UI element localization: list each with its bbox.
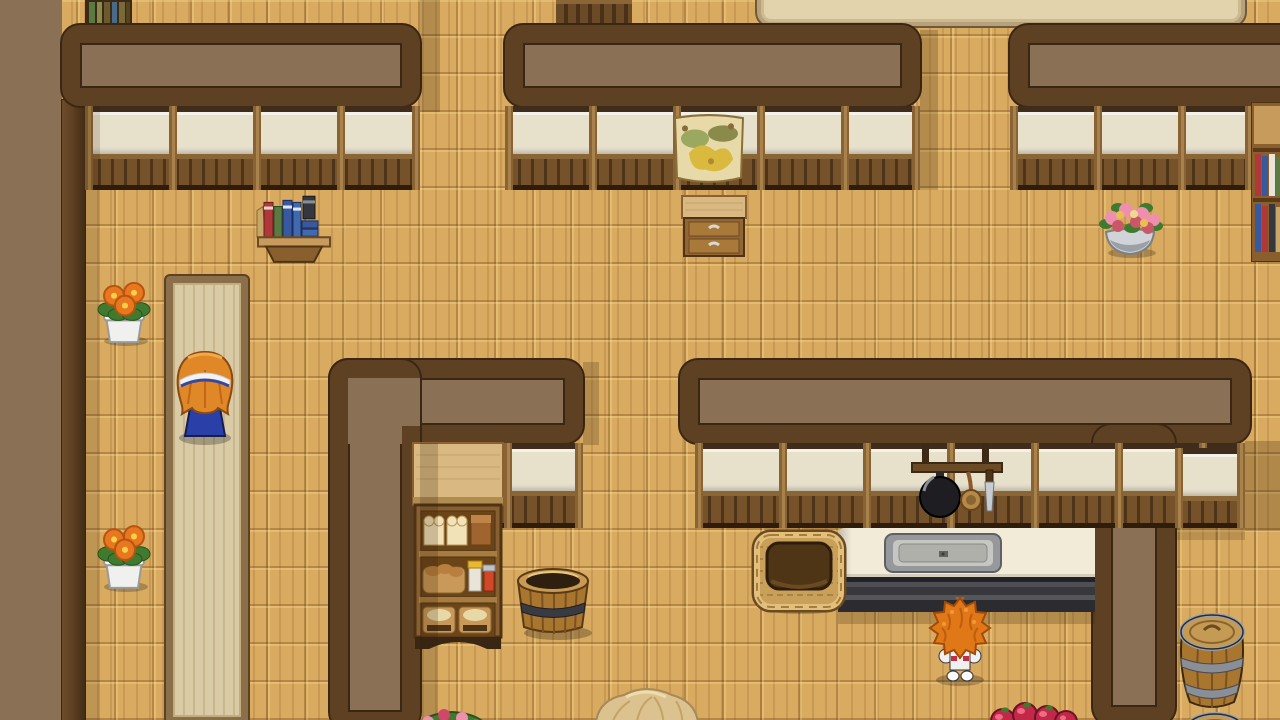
- wall-cap-top-right: [1010, 25, 1280, 106]
- flower-pot-orange: [92, 279, 156, 346]
- game-viewport: [0, 0, 1280, 720]
- wall-fill-patch: [402, 378, 420, 426]
- left-wall-edge: [62, 100, 85, 720]
- apple-pile[interactable]: [983, 691, 1079, 720]
- wooden-bucket[interactable]: [504, 543, 602, 641]
- flower-bowl-pink: [1096, 196, 1164, 258]
- wall-cap-top-center: [505, 25, 920, 106]
- window-posts: [85, 106, 420, 190]
- sink[interactable]: [884, 533, 1002, 573]
- upstairs-cabinet-icon: [556, 0, 632, 26]
- window-wall-right: [1010, 106, 1253, 190]
- window-posts: [1010, 106, 1253, 190]
- carpet-runner: [166, 276, 248, 720]
- window-posts: [1175, 448, 1245, 528]
- upstairs-table: [757, 0, 1245, 26]
- wicker-basket[interactable]: [751, 525, 847, 614]
- flower-pot-orange: [92, 522, 156, 592]
- wall-cap-top-left: [62, 25, 420, 106]
- flower-basket-partial: [410, 698, 494, 720]
- barrel-partial[interactable]: [1182, 698, 1248, 720]
- wall-fill-patch: [348, 378, 402, 444]
- hanging-pan-rack: [910, 443, 1004, 525]
- window-wall-left: [85, 106, 420, 190]
- window-wall-corridor: [1175, 448, 1245, 528]
- left-wall-top: [0, 0, 62, 720]
- bookshelf-right-edge[interactable]: [1251, 102, 1280, 262]
- hay-sack-partial: [586, 681, 706, 720]
- upstairs-bookshelf-icon: [85, 0, 132, 26]
- poster-map[interactable]: [671, 112, 747, 186]
- bread-display-shelf[interactable]: [411, 441, 505, 649]
- character-spiky-orange[interactable]: [922, 594, 998, 686]
- character-girl[interactable]: [168, 348, 242, 446]
- wall-shelf-books[interactable]: [256, 186, 332, 266]
- drawer-cabinet[interactable]: [681, 194, 747, 258]
